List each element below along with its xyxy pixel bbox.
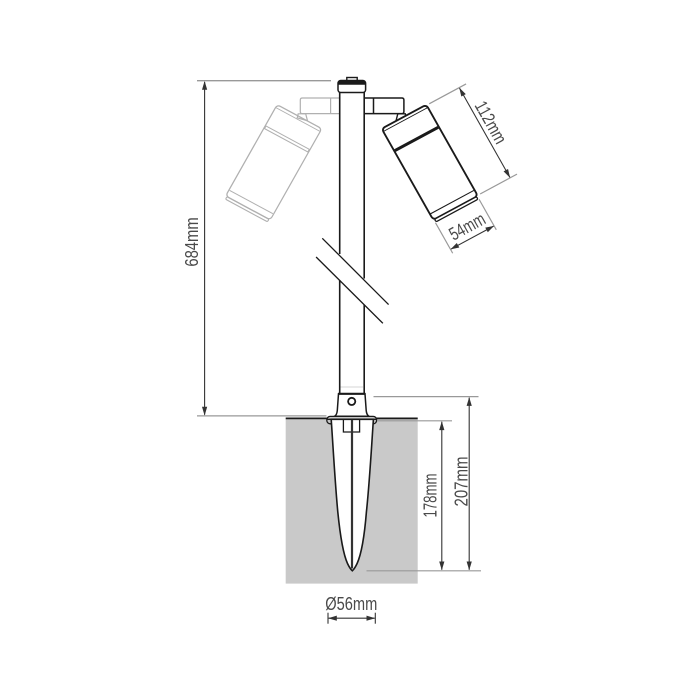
svg-text:178mm: 178mm (419, 474, 440, 518)
svg-text:Ø56mm: Ø56mm (325, 593, 377, 614)
svg-text:684mm: 684mm (181, 217, 202, 266)
svg-text:207mm: 207mm (451, 457, 472, 507)
